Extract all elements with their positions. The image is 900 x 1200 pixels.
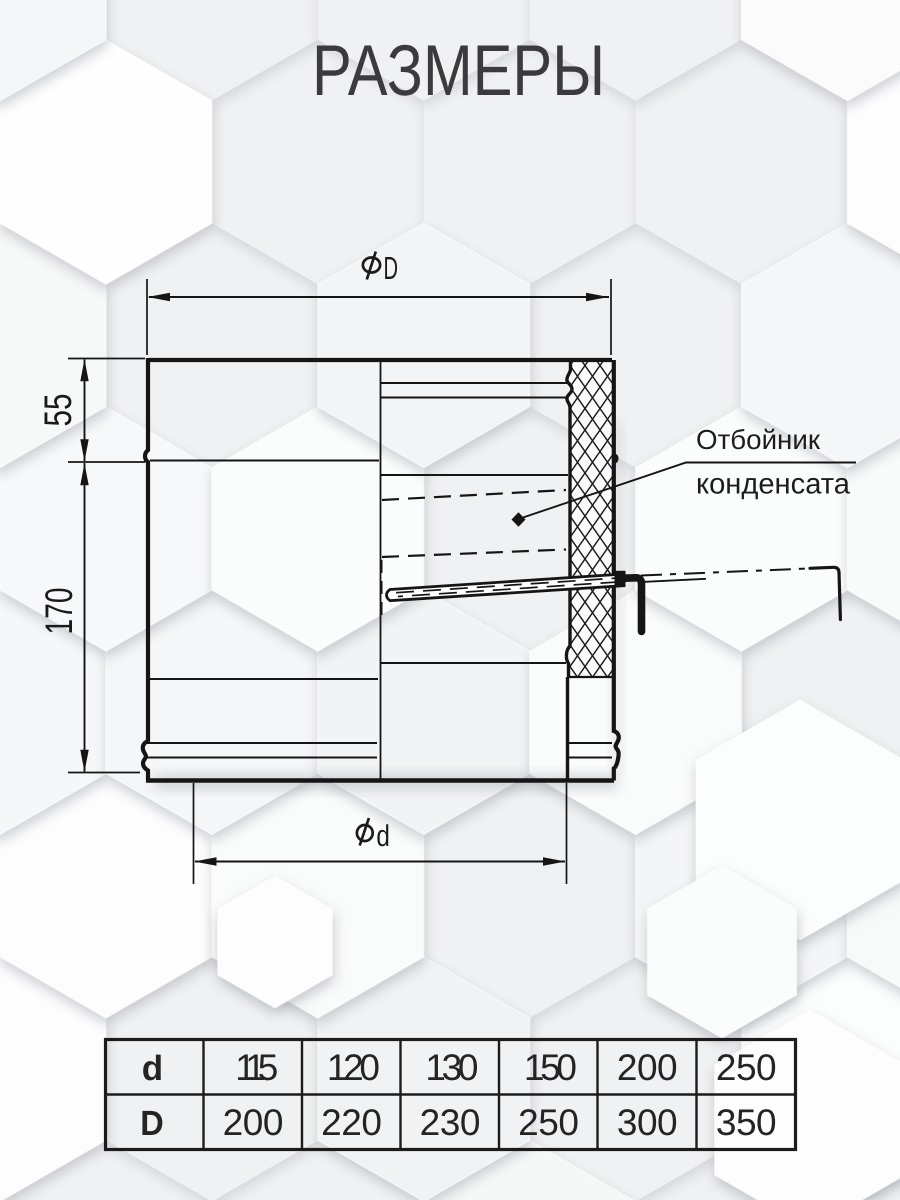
svg-text:d: d: [376, 820, 390, 853]
svg-text:230: 230: [420, 1102, 480, 1143]
svg-text:120: 120: [327, 1047, 380, 1088]
svg-text:200: 200: [223, 1102, 283, 1143]
svg-text:250: 250: [518, 1102, 578, 1143]
svg-text:200: 200: [617, 1047, 677, 1088]
svg-text:55: 55: [37, 394, 80, 427]
svg-text:150: 150: [524, 1047, 577, 1088]
svg-text:d: d: [142, 1049, 163, 1088]
svg-text:350: 350: [716, 1102, 776, 1143]
svg-text:300: 300: [617, 1102, 677, 1143]
svg-text:170: 170: [38, 588, 81, 635]
svg-text:РАЗМЕРЫ: РАЗМЕРЫ: [312, 31, 605, 111]
svg-text:220: 220: [321, 1102, 381, 1143]
svg-text:130: 130: [425, 1047, 478, 1088]
svg-text:конденсата: конденсата: [696, 469, 851, 501]
svg-text:250: 250: [716, 1047, 776, 1088]
svg-text:Отбойник: Отбойник: [696, 424, 821, 455]
svg-text:D: D: [140, 1104, 164, 1143]
svg-text:D: D: [384, 250, 399, 286]
